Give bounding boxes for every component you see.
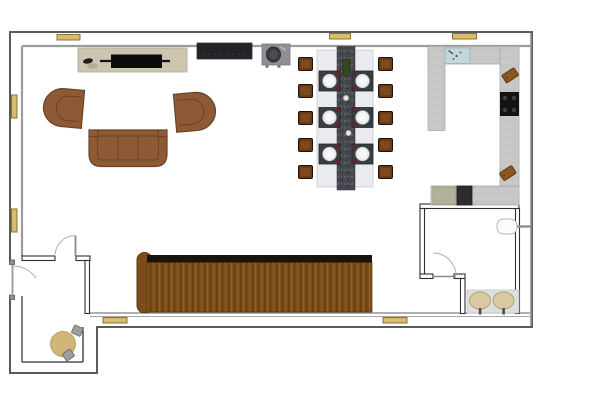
- sideroom-top-wall-left: [22, 256, 55, 261]
- bathroom-step-wall-left: [420, 274, 433, 279]
- sideroom-door-swing-arc: [55, 236, 76, 257]
- washer-drum-inner: [269, 50, 277, 60]
- dark-counter-dot: [202, 54, 203, 55]
- sofa: [89, 130, 167, 167]
- entry-door-jamb-bottom: [10, 295, 15, 300]
- appliance-beige: [433, 187, 456, 205]
- sideroom-top-wall-right: [76, 256, 90, 261]
- cooktop-burner: [512, 108, 517, 113]
- window-bottom-1: [103, 318, 127, 324]
- wine-glass: [353, 159, 356, 162]
- wine-glass: [336, 123, 339, 126]
- dark-counter-dot: [214, 54, 215, 55]
- plate-inner: [325, 150, 333, 158]
- wine-glass: [353, 109, 356, 112]
- appliance-black: [457, 186, 472, 205]
- wine-glass: [353, 86, 356, 89]
- sofa-arm: [158, 130, 167, 137]
- bar-body: [147, 263, 372, 313]
- window-top-1: [57, 35, 80, 41]
- plate-inner: [358, 150, 366, 158]
- candle: [343, 95, 348, 100]
- dark-counter-dot: [232, 54, 233, 55]
- cooktop-burner: [503, 96, 508, 101]
- entry-door-jamb-top: [10, 260, 15, 265]
- plan-root: [8, 32, 533, 373]
- plate-inner: [325, 113, 333, 121]
- floor-plan: [0, 0, 600, 400]
- living-room: [42, 87, 217, 167]
- dining-chair-seat: [301, 114, 310, 122]
- wine-glass: [353, 72, 356, 75]
- window-left-1: [12, 95, 18, 118]
- dark-counter-dot: [238, 54, 239, 55]
- cooktop-burner: [512, 96, 517, 101]
- wine-bottle: [343, 59, 350, 76]
- wall-basin: [497, 219, 517, 234]
- decor-shadow: [87, 63, 98, 69]
- dining-chair-seat: [301, 87, 310, 95]
- sink-knob: [453, 58, 455, 60]
- kitchen: [428, 47, 519, 206]
- tv-screen: [111, 55, 162, 69]
- floor-plan-canvas: [0, 0, 600, 400]
- wine-glass: [336, 86, 339, 89]
- window-top-3: [453, 34, 477, 40]
- bathroom: [467, 219, 531, 315]
- sofa-arm: [89, 130, 98, 137]
- counter-left-run: [428, 47, 445, 131]
- dining-set: [299, 47, 393, 191]
- plate-inner: [358, 113, 366, 121]
- dining-chair-seat: [381, 87, 390, 95]
- dining-chair-seat: [301, 60, 310, 68]
- stool: [470, 292, 491, 309]
- sideroom-right-wall-upper: [85, 261, 90, 314]
- window-left-2: [12, 209, 18, 232]
- wine-glass: [353, 123, 356, 126]
- dark-counter: [197, 43, 252, 59]
- bathroom-left-wall: [420, 209, 425, 275]
- stool: [493, 292, 514, 309]
- washer-foot: [278, 66, 281, 68]
- wine-glass: [336, 159, 339, 162]
- utility-units: [197, 43, 290, 68]
- window-bottom-2: [383, 318, 407, 324]
- plate-inner: [358, 77, 366, 85]
- side-room: [51, 325, 84, 361]
- candle: [346, 130, 351, 135]
- bar-counter: [137, 253, 372, 314]
- dining-chair-seat: [381, 114, 390, 122]
- dark-counter-dot: [220, 54, 221, 55]
- dark-counter-dot: [244, 54, 245, 55]
- dining-chair-seat: [301, 141, 310, 149]
- washer-foot: [266, 66, 269, 68]
- dining-chair-seat: [381, 141, 390, 149]
- bathroom-step-wall-vertical: [461, 279, 466, 314]
- wine-glass: [336, 109, 339, 112]
- armchair-left: [42, 87, 85, 128]
- dark-counter-dot: [208, 54, 209, 55]
- sink-knob: [460, 52, 462, 54]
- dark-counter-dot: [226, 54, 227, 55]
- dining-chair-seat: [301, 168, 310, 176]
- bathroom-door-swing-arc: [433, 253, 456, 276]
- cooktop-burner: [503, 108, 508, 113]
- sink-drain: [455, 55, 457, 57]
- plate-inner: [325, 77, 333, 85]
- window-top-2: [330, 34, 351, 40]
- bar-top-band: [147, 255, 372, 263]
- dining-chair-seat: [381, 168, 390, 176]
- dining-chair-seat: [381, 60, 390, 68]
- stool-leg: [479, 308, 482, 315]
- small-chair: [71, 325, 83, 337]
- wine-glass: [336, 145, 339, 148]
- wine-glass: [336, 72, 339, 75]
- stool-leg: [502, 308, 505, 315]
- wine-glass: [353, 145, 356, 148]
- tv-unit: [78, 48, 187, 72]
- cooktop: [500, 92, 519, 116]
- armchair-right: [173, 91, 217, 132]
- entry-door-opening: [8, 264, 24, 295]
